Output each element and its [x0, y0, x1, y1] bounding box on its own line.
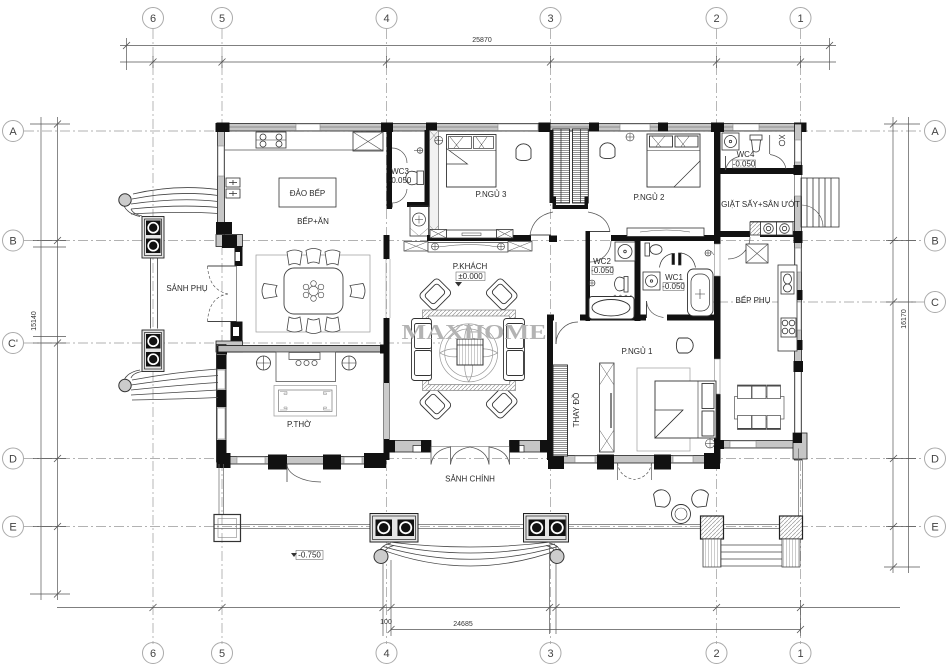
svg-text:SẢNH CHÍNH: SẢNH CHÍNH — [445, 475, 495, 484]
svg-text:A: A — [931, 126, 939, 138]
svg-text:1: 1 — [797, 648, 803, 660]
svg-text:4: 4 — [383, 648, 389, 660]
svg-text:E: E — [9, 522, 16, 534]
svg-text:-0.050: -0.050 — [662, 282, 685, 291]
svg-text:-0.750: -0.750 — [298, 551, 321, 560]
svg-text:6: 6 — [150, 648, 156, 660]
svg-text:A: A — [9, 126, 17, 138]
svg-text:GIẶT SẤY+SÂN ƯỚT: GIẶT SẤY+SÂN ƯỚT — [721, 199, 800, 209]
svg-text:P.THỜ: P.THỜ — [287, 420, 311, 429]
svg-text:16170: 16170 — [901, 309, 908, 329]
svg-text:15140: 15140 — [31, 311, 38, 331]
svg-text:SẢNH PHỤ: SẢNH PHỤ — [166, 284, 208, 293]
svg-text:ĐẢO BẾP: ĐẢO BẾP — [290, 188, 326, 198]
svg-text:WC3: WC3 — [391, 167, 409, 176]
svg-text:±0.000: ±0.000 — [458, 272, 483, 281]
svg-text:P.KHÁCH: P.KHÁCH — [453, 262, 488, 271]
svg-text:BẾP PHỤ: BẾP PHỤ — [736, 295, 771, 305]
svg-text:D: D — [9, 454, 17, 466]
svg-text:P.NGỦ 2: P.NGỦ 2 — [634, 193, 666, 202]
svg-text:2: 2 — [713, 648, 719, 660]
svg-text:E: E — [931, 522, 938, 534]
svg-text:5: 5 — [219, 13, 225, 25]
svg-text:D: D — [931, 454, 939, 466]
svg-text:C': C' — [8, 338, 18, 350]
svg-text:B: B — [9, 236, 16, 248]
svg-text:25870: 25870 — [472, 37, 492, 44]
svg-text:P.NGỦ 1: P.NGỦ 1 — [622, 347, 654, 356]
svg-text:WC4: WC4 — [737, 150, 755, 159]
svg-text:5: 5 — [219, 648, 225, 660]
svg-text:C: C — [931, 297, 939, 309]
svg-text:100: 100 — [380, 619, 392, 626]
svg-text:3: 3 — [547, 648, 553, 660]
svg-text:1: 1 — [797, 13, 803, 25]
svg-text:WC1: WC1 — [665, 273, 683, 282]
svg-text:-0.050: -0.050 — [591, 266, 614, 275]
svg-text:P.NGỦ 3: P.NGỦ 3 — [476, 190, 508, 199]
svg-text:24685: 24685 — [453, 621, 473, 628]
svg-text:3: 3 — [547, 13, 553, 25]
svg-text:4: 4 — [383, 13, 389, 25]
svg-text:-0.050: -0.050 — [733, 160, 756, 169]
svg-text:B: B — [931, 236, 938, 248]
svg-text:MAXHOME: MAXHOME — [402, 320, 547, 344]
svg-text:WC2: WC2 — [593, 257, 611, 266]
svg-text:THAY ĐỒ: THAY ĐỒ — [571, 393, 581, 428]
svg-text:2: 2 — [713, 13, 719, 25]
svg-text:BẾP+ĂN: BẾP+ĂN — [297, 216, 329, 226]
svg-text:-0.050: -0.050 — [389, 176, 412, 185]
svg-text:6: 6 — [150, 13, 156, 25]
